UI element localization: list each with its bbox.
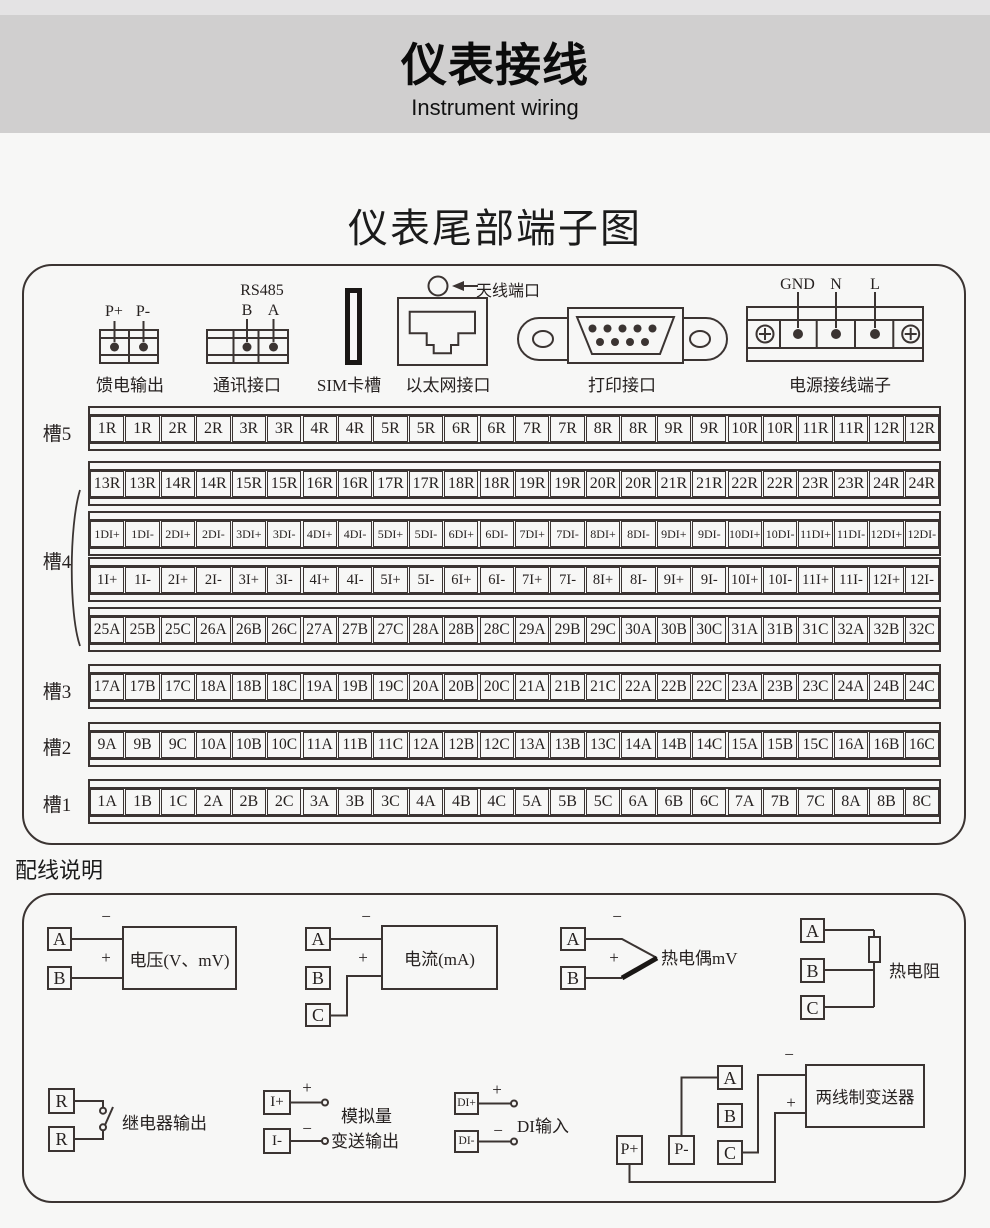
terminal-strip: 1A1B1C2A2B2C3A3B3C4A4B4C5A5B5C6A6B6C7A7B… bbox=[88, 779, 941, 824]
voltage-terminal-b: B bbox=[47, 966, 72, 990]
terminal-cell: 6DI- bbox=[480, 521, 514, 547]
strip-cells: 1A1B1C2A2B2C3A3B3C4A4B4C5A5B5C6A6B6C7A7B… bbox=[90, 789, 939, 815]
current-box: 电流(mA) bbox=[381, 925, 498, 990]
strip-bottom-band bbox=[90, 815, 939, 822]
terminal-cell: 21R bbox=[692, 471, 726, 497]
terminal-cell: 21R bbox=[657, 471, 691, 497]
voltage-terminal-a: A bbox=[47, 927, 72, 951]
thermocouple-terminal-b: B bbox=[560, 966, 586, 990]
terminal-cell: 11R bbox=[834, 416, 868, 442]
terminal-cell: 18R bbox=[480, 471, 514, 497]
strip-top-band bbox=[90, 463, 939, 471]
terminal-cell: 1R bbox=[125, 416, 159, 442]
terminal-cell: 15R bbox=[267, 471, 301, 497]
power-terminal-label: 电源接线端子 bbox=[787, 371, 893, 396]
current-plus-sign: + bbox=[352, 948, 374, 968]
terminal-cell: 5I+ bbox=[373, 567, 407, 593]
terminal-cell: 12I- bbox=[905, 567, 939, 593]
terminal-cell: 30A bbox=[621, 617, 655, 643]
relay-terminal-r2: R bbox=[48, 1126, 75, 1152]
terminal-strip: 9A9B9C10A10B10C11A11B11C12A12B12C13A13B1… bbox=[88, 722, 941, 767]
terminal-cell: 28B bbox=[444, 617, 478, 643]
terminal-cell: 4I- bbox=[338, 567, 372, 593]
terminal-cell: 23A bbox=[728, 674, 762, 700]
db9-connector-icon bbox=[518, 308, 727, 363]
terminal-cell: 29C bbox=[586, 617, 620, 643]
terminal-cell: 27B bbox=[338, 617, 372, 643]
terminal-cell: 9DI+ bbox=[657, 521, 691, 547]
terminal-cell: 32B bbox=[869, 617, 903, 643]
strip-bottom-band bbox=[90, 442, 939, 449]
comm-port-label: 通讯接口 bbox=[211, 371, 283, 396]
strip-top-band bbox=[90, 408, 939, 416]
terminal-cell: 30C bbox=[692, 617, 726, 643]
terminal-cell: 14R bbox=[161, 471, 195, 497]
strip-bottom-band bbox=[90, 643, 939, 650]
terminal-cell: 32C bbox=[905, 617, 939, 643]
terminal-cell: 2R bbox=[161, 416, 195, 442]
terminal-cell: 17B bbox=[125, 674, 159, 700]
terminal-cell: 22R bbox=[728, 471, 762, 497]
terminal-cell: 19A bbox=[303, 674, 337, 700]
strip-cells: 1R1R2R2R3R3R4R4R5R5R6R6R7R7R8R8R9R9R10R1… bbox=[90, 416, 939, 442]
terminal-cell: 4DI- bbox=[338, 521, 372, 547]
page: 仪表接线 Instrument wiring 仪表尾部端子图 bbox=[0, 0, 990, 1228]
relay-label: 继电器输出 bbox=[122, 1109, 207, 1134]
terminal-cell: 12R bbox=[905, 416, 939, 442]
thermocouple-minus-sign: − bbox=[606, 907, 628, 927]
terminal-strip: 1I+1I-2I+2I-3I+3I-4I+4I-5I+5I-6I+6I-7I+7… bbox=[88, 557, 941, 602]
transmitter-terminal-c: C bbox=[717, 1140, 743, 1165]
strip-cells: 1DI+1DI-2DI+2DI-3DI+3DI-4DI+4DI-5DI+5DI-… bbox=[90, 521, 939, 547]
terminal-cell: 6B bbox=[657, 789, 691, 815]
terminal-cell: 30B bbox=[657, 617, 691, 643]
analog-terminal-iplus: I+ bbox=[263, 1090, 291, 1115]
terminal-cell: 11B bbox=[338, 732, 372, 758]
terminal-cell: 2I+ bbox=[161, 567, 195, 593]
analog-terminal-iminus: I- bbox=[263, 1128, 291, 1154]
terminal-cell: 23B bbox=[763, 674, 797, 700]
terminal-cell: 4A bbox=[409, 789, 443, 815]
di-minus-sign: − bbox=[487, 1121, 509, 1141]
terminal-cell: 8I- bbox=[621, 567, 655, 593]
terminal-cell: 18A bbox=[196, 674, 230, 700]
current-minus-sign: − bbox=[355, 907, 377, 927]
slot-3-label: 槽3 bbox=[36, 677, 78, 704]
analog-label-line2: 变送输出 bbox=[331, 1127, 399, 1152]
feed-pin-plus-label: P+ bbox=[101, 303, 127, 321]
comm-terminal-block bbox=[207, 319, 288, 363]
terminal-cell: 12I+ bbox=[869, 567, 903, 593]
terminal-cell: 25B bbox=[125, 617, 159, 643]
terminal-cell: 3I- bbox=[267, 567, 301, 593]
terminal-cell: 5DI+ bbox=[373, 521, 407, 547]
title-band: 仪表接线 Instrument wiring bbox=[0, 15, 990, 133]
sim-slot-label: SIM卡槽 bbox=[312, 371, 386, 396]
terminal-cell: 11A bbox=[303, 732, 337, 758]
analog-label-line1: 模拟量 bbox=[341, 1102, 392, 1127]
terminal-cell: 2R bbox=[196, 416, 230, 442]
terminal-cell: 9A bbox=[90, 732, 124, 758]
power-pin-n-label: N bbox=[822, 276, 850, 294]
rtd-label: 热电阻 bbox=[889, 957, 940, 982]
di-plus-sign: + bbox=[486, 1080, 508, 1100]
terminal-cell: 19B bbox=[338, 674, 372, 700]
terminal-cell: 2DI- bbox=[196, 521, 230, 547]
power-pin-l-label: L bbox=[861, 276, 889, 294]
terminal-cell: 6C bbox=[692, 789, 726, 815]
terminal-cell: 1C bbox=[161, 789, 195, 815]
terminal-cell: 14R bbox=[196, 471, 230, 497]
slot-4-brace bbox=[66, 486, 82, 650]
strip-cells: 25A25B25C26A26B26C27A27B27C28A28B28C29A2… bbox=[90, 617, 939, 643]
terminal-cell: 23R bbox=[798, 471, 832, 497]
terminal-cell: 24R bbox=[869, 471, 903, 497]
terminal-cell: 10I- bbox=[763, 567, 797, 593]
terminal-cell: 2A bbox=[196, 789, 230, 815]
terminal-cell: 1I- bbox=[125, 567, 159, 593]
terminal-cell: 7A bbox=[728, 789, 762, 815]
terminal-cell: 27C bbox=[373, 617, 407, 643]
transmitter-plus-sign: + bbox=[780, 1093, 802, 1113]
antenna-port-label: 天线端口 bbox=[476, 277, 540, 301]
feed-terminal-block bbox=[100, 321, 158, 363]
terminal-cell: 24A bbox=[834, 674, 868, 700]
terminal-cell: 16R bbox=[338, 471, 372, 497]
top-strip bbox=[0, 0, 990, 15]
strip-top-band bbox=[90, 559, 939, 567]
terminal-cell: 23C bbox=[798, 674, 832, 700]
terminal-cell: 5I- bbox=[409, 567, 443, 593]
terminal-cell: 9I- bbox=[692, 567, 726, 593]
terminal-cell: 14C bbox=[692, 732, 726, 758]
current-terminal-a: A bbox=[305, 927, 331, 951]
terminal-cell: 7DI+ bbox=[515, 521, 549, 547]
terminal-cell: 3R bbox=[232, 416, 266, 442]
terminal-cell: 24R bbox=[905, 471, 939, 497]
terminal-cell: 9R bbox=[657, 416, 691, 442]
di-terminal-plus: DI+ bbox=[454, 1092, 479, 1115]
terminal-cell: 22R bbox=[763, 471, 797, 497]
current-terminal-c: C bbox=[305, 1003, 331, 1027]
strip-top-band bbox=[90, 513, 939, 521]
terminal-cell: 6I+ bbox=[444, 567, 478, 593]
strip-cells: 9A9B9C10A10B10C11A11B11C12A12B12C13A13B1… bbox=[90, 732, 939, 758]
sim-slot-icon bbox=[348, 291, 360, 363]
terminal-cell: 9I+ bbox=[657, 567, 691, 593]
transmitter-terminal-a: A bbox=[717, 1065, 743, 1090]
terminal-cell: 31C bbox=[798, 617, 832, 643]
terminal-cell: 1A bbox=[90, 789, 124, 815]
terminal-cell: 28C bbox=[480, 617, 514, 643]
terminal-cell: 3B bbox=[338, 789, 372, 815]
terminal-cell: 19C bbox=[373, 674, 407, 700]
power-terminal-block bbox=[747, 292, 923, 361]
terminal-strip: 1R1R2R2R3R3R4R4R5R5R6R6R7R7R8R8R9R9R10R1… bbox=[88, 406, 941, 451]
terminal-cell: 21A bbox=[515, 674, 549, 700]
slot-2-label: 槽2 bbox=[36, 733, 78, 760]
terminal-cell: 11I+ bbox=[798, 567, 832, 593]
current-terminal-b: B bbox=[305, 966, 331, 990]
strip-bottom-band bbox=[90, 758, 939, 765]
transmitter-minus-sign: − bbox=[778, 1045, 800, 1065]
terminal-cell: 32A bbox=[834, 617, 868, 643]
terminal-cell: 28A bbox=[409, 617, 443, 643]
terminal-cell: 11DI- bbox=[834, 521, 868, 547]
terminal-cell: 3A bbox=[303, 789, 337, 815]
slot-1-label: 槽1 bbox=[36, 790, 78, 817]
voltage-box: 电压(V、mV) bbox=[122, 926, 237, 990]
terminal-cell: 31B bbox=[763, 617, 797, 643]
terminal-strip: 25A25B25C26A26B26C27A27B27C28A28B28C29A2… bbox=[88, 607, 941, 652]
terminal-cell: 16C bbox=[905, 732, 939, 758]
terminal-cell: 15R bbox=[232, 471, 266, 497]
terminal-cell: 5R bbox=[409, 416, 443, 442]
terminal-cell: 2B bbox=[232, 789, 266, 815]
terminal-cell: 13R bbox=[90, 471, 124, 497]
terminal-cell: 7I- bbox=[550, 567, 584, 593]
power-pin-gnd-label: GND bbox=[779, 276, 816, 294]
terminal-cell: 20C bbox=[480, 674, 514, 700]
strip-bottom-band bbox=[90, 593, 939, 600]
terminal-cell: 10R bbox=[728, 416, 762, 442]
terminal-cell: 18B bbox=[232, 674, 266, 700]
strip-cells: 13R13R14R14R15R15R16R16R17R17R18R18R19R1… bbox=[90, 471, 939, 497]
page-title: 仪表接线 bbox=[0, 29, 990, 95]
strip-bottom-band bbox=[90, 497, 939, 504]
terminal-strip: 17A17B17C18A18B18C19A19B19C20A20B20C21A2… bbox=[88, 664, 941, 709]
terminal-cell: 6R bbox=[444, 416, 478, 442]
terminal-cell: 16R bbox=[303, 471, 337, 497]
terminal-cell: 1R bbox=[90, 416, 124, 442]
terminal-cell: 5B bbox=[550, 789, 584, 815]
terminal-cell: 1DI- bbox=[125, 521, 159, 547]
terminal-cell: 25A bbox=[90, 617, 124, 643]
terminal-cell: 22C bbox=[692, 674, 726, 700]
terminal-cell: 8C bbox=[905, 789, 939, 815]
terminal-cell: 10A bbox=[196, 732, 230, 758]
terminal-cell: 17C bbox=[161, 674, 195, 700]
slot-5-label: 槽5 bbox=[36, 419, 78, 446]
rtd-terminal-c: C bbox=[800, 995, 825, 1020]
terminal-cell: 18C bbox=[267, 674, 301, 700]
terminal-cell: 26A bbox=[196, 617, 230, 643]
terminal-cell: 29A bbox=[515, 617, 549, 643]
terminal-cell: 13A bbox=[515, 732, 549, 758]
terminal-cell: 17R bbox=[373, 471, 407, 497]
ethernet-jack-icon bbox=[398, 298, 487, 365]
terminal-cell: 27A bbox=[303, 617, 337, 643]
terminal-cell: 24C bbox=[905, 674, 939, 700]
rtd-terminal-b: B bbox=[800, 958, 825, 983]
terminal-cell: 7B bbox=[763, 789, 797, 815]
terminal-cell: 10C bbox=[267, 732, 301, 758]
terminal-cell: 11I- bbox=[834, 567, 868, 593]
terminal-cell: 4I+ bbox=[303, 567, 337, 593]
terminal-cell: 21B bbox=[550, 674, 584, 700]
terminal-cell: 13C bbox=[586, 732, 620, 758]
terminal-cell: 2C bbox=[267, 789, 301, 815]
terminal-cell: 1DI+ bbox=[90, 521, 124, 547]
terminal-cell: 2DI+ bbox=[161, 521, 195, 547]
terminal-cell: 29B bbox=[550, 617, 584, 643]
transmitter-terminal-pplus: P+ bbox=[616, 1135, 643, 1165]
terminal-cell: 18R bbox=[444, 471, 478, 497]
terminal-cell: 10R bbox=[763, 416, 797, 442]
terminal-cell: 5R bbox=[373, 416, 407, 442]
terminal-cell: 9DI- bbox=[692, 521, 726, 547]
section-title: 仪表尾部端子图 bbox=[0, 196, 990, 254]
terminal-cell: 14B bbox=[657, 732, 691, 758]
terminal-cell: 12C bbox=[480, 732, 514, 758]
terminal-cell: 4R bbox=[338, 416, 372, 442]
terminal-cell: 16B bbox=[869, 732, 903, 758]
terminal-cell: 5C bbox=[586, 789, 620, 815]
wiring-section-title: 配线说明 bbox=[15, 853, 103, 885]
terminal-cell: 17A bbox=[90, 674, 124, 700]
terminal-cell: 23R bbox=[834, 471, 868, 497]
terminal-cell: 8B bbox=[869, 789, 903, 815]
thermocouple-terminal-a: A bbox=[560, 927, 586, 951]
terminal-cell: 6R bbox=[480, 416, 514, 442]
terminal-cell: 15C bbox=[798, 732, 832, 758]
strip-top-band bbox=[90, 609, 939, 617]
terminal-cell: 11C bbox=[373, 732, 407, 758]
page-subtitle: Instrument wiring bbox=[0, 95, 990, 121]
terminal-cell: 15B bbox=[763, 732, 797, 758]
feed-output-label: 馈电输出 bbox=[94, 371, 166, 396]
terminal-cell: 20A bbox=[409, 674, 443, 700]
antenna-icon bbox=[429, 277, 479, 296]
terminal-cell: 12A bbox=[409, 732, 443, 758]
di-label: DI输入 bbox=[517, 1112, 569, 1137]
terminal-cell: 12R bbox=[869, 416, 903, 442]
terminal-cell: 20B bbox=[444, 674, 478, 700]
thermocouple-plus-sign: + bbox=[603, 948, 625, 968]
terminal-cell: 7C bbox=[798, 789, 832, 815]
terminal-cell: 16A bbox=[834, 732, 868, 758]
terminal-cell: 20R bbox=[586, 471, 620, 497]
terminal-cell: 3DI- bbox=[267, 521, 301, 547]
terminal-cell: 10B bbox=[232, 732, 266, 758]
voltage-minus-sign: − bbox=[95, 907, 117, 927]
terminal-cell: 4R bbox=[303, 416, 337, 442]
rs485-label: RS485 bbox=[234, 282, 290, 300]
terminal-cell: 19R bbox=[515, 471, 549, 497]
terminal-cell: 12B bbox=[444, 732, 478, 758]
terminal-cell: 21C bbox=[586, 674, 620, 700]
terminal-cell: 8DI- bbox=[621, 521, 655, 547]
comm-pin-a-label: A bbox=[265, 302, 282, 320]
terminal-cell: 8R bbox=[586, 416, 620, 442]
terminal-cell: 4B bbox=[444, 789, 478, 815]
strip-cells: 1I+1I-2I+2I-3I+3I-4I+4I-5I+5I-6I+6I-7I+7… bbox=[90, 567, 939, 593]
strip-top-band bbox=[90, 724, 939, 732]
terminal-cell: 3C bbox=[373, 789, 407, 815]
di-terminal-minus: DI- bbox=[454, 1130, 479, 1153]
terminal-cell: 8A bbox=[834, 789, 868, 815]
terminal-cell: 9C bbox=[161, 732, 195, 758]
terminal-cell: 13B bbox=[550, 732, 584, 758]
terminal-cell: 20R bbox=[621, 471, 655, 497]
terminal-cell: 26C bbox=[267, 617, 301, 643]
terminal-cell: 6DI+ bbox=[444, 521, 478, 547]
transmitter-box: 两线制变送器 bbox=[805, 1064, 925, 1128]
terminal-cell: 10DI- bbox=[763, 521, 797, 547]
terminal-cell: 4C bbox=[480, 789, 514, 815]
terminal-cell: 19R bbox=[550, 471, 584, 497]
terminal-cell: 22B bbox=[657, 674, 691, 700]
terminal-cell: 9B bbox=[125, 732, 159, 758]
analog-minus-sign: − bbox=[296, 1119, 318, 1139]
terminal-cell: 3I+ bbox=[232, 567, 266, 593]
strip-cells: 17A17B17C18A18B18C19A19B19C20A20B20C21A2… bbox=[90, 674, 939, 700]
transmitter-terminal-pminus: P- bbox=[668, 1135, 695, 1165]
terminal-cell: 11R bbox=[798, 416, 832, 442]
transmitter-terminal-b: B bbox=[717, 1103, 743, 1128]
terminal-cell: 8DI+ bbox=[586, 521, 620, 547]
comm-pin-b-label: B bbox=[239, 302, 255, 320]
terminal-cell: 11DI+ bbox=[798, 521, 832, 547]
terminal-cell: 1B bbox=[125, 789, 159, 815]
terminal-cell: 5DI- bbox=[409, 521, 443, 547]
strip-bottom-band bbox=[90, 700, 939, 707]
feed-pin-minus-label: P- bbox=[130, 303, 156, 321]
terminal-cell: 15A bbox=[728, 732, 762, 758]
terminal-cell: 7DI- bbox=[550, 521, 584, 547]
rtd-terminal-a: A bbox=[800, 918, 825, 943]
terminal-cell: 3DI+ bbox=[232, 521, 266, 547]
strip-top-band bbox=[90, 781, 939, 789]
terminal-cell: 10I+ bbox=[728, 567, 762, 593]
terminal-strip: 1DI+1DI-2DI+2DI-3DI+3DI-4DI+4DI-5DI+5DI-… bbox=[88, 511, 941, 556]
terminal-cell: 8I+ bbox=[586, 567, 620, 593]
voltage-plus-sign: + bbox=[95, 948, 117, 968]
terminal-cell: 6I- bbox=[480, 567, 514, 593]
terminal-cell: 26B bbox=[232, 617, 266, 643]
strip-bottom-band bbox=[90, 547, 939, 554]
terminal-cell: 24B bbox=[869, 674, 903, 700]
terminal-strip: 13R13R14R14R15R15R16R16R17R17R18R18R19R1… bbox=[88, 461, 941, 506]
terminal-cell: 7R bbox=[550, 416, 584, 442]
terminal-cell: 25C bbox=[161, 617, 195, 643]
strip-top-band bbox=[90, 666, 939, 674]
terminal-cell: 2I- bbox=[196, 567, 230, 593]
analog-plus-sign: + bbox=[296, 1078, 318, 1098]
relay-terminal-r1: R bbox=[48, 1088, 75, 1114]
terminal-cell: 7I+ bbox=[515, 567, 549, 593]
terminal-cell: 1I+ bbox=[90, 567, 124, 593]
terminal-cell: 10DI+ bbox=[728, 521, 762, 547]
terminal-cell: 9R bbox=[692, 416, 726, 442]
terminal-cell: 14A bbox=[621, 732, 655, 758]
terminal-cell: 4DI+ bbox=[303, 521, 337, 547]
terminal-cell: 31A bbox=[728, 617, 762, 643]
terminal-cell: 22A bbox=[621, 674, 655, 700]
ethernet-port-label: 以太网接口 bbox=[403, 371, 493, 396]
terminal-cell: 17R bbox=[409, 471, 443, 497]
terminal-cell: 7R bbox=[515, 416, 549, 442]
terminal-cell: 3R bbox=[267, 416, 301, 442]
thermocouple-label: 热电偶mV bbox=[661, 944, 738, 969]
terminal-cell: 6A bbox=[621, 789, 655, 815]
terminal-cell: 8R bbox=[621, 416, 655, 442]
terminal-cell: 13R bbox=[125, 471, 159, 497]
terminal-cell: 12DI+ bbox=[869, 521, 903, 547]
printer-port-label: 打印接口 bbox=[586, 371, 658, 396]
terminal-cell: 12DI- bbox=[905, 521, 939, 547]
terminal-cell: 5A bbox=[515, 789, 549, 815]
